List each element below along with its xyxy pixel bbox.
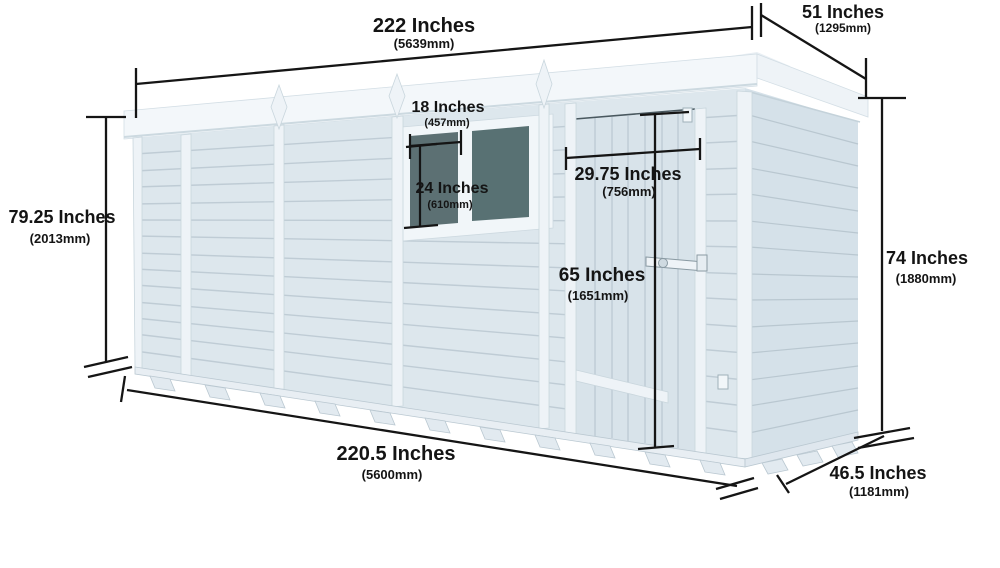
diagram-canvas: 222 Inches (5639mm) 51 Inches (1295mm) 7… xyxy=(0,0,1000,568)
overall-width-metric: (5639mm) xyxy=(394,36,455,51)
window-width-metric: (457mm) xyxy=(424,117,470,129)
door-width-metric: (756mm) xyxy=(602,184,655,199)
door-height-metric: (1651mm) xyxy=(568,288,629,303)
window-pane-right xyxy=(472,126,529,221)
base-depth-label: 46.5 Inches xyxy=(829,463,926,483)
window-height-label: 24 Inches xyxy=(416,180,489,197)
hinge-bottom xyxy=(718,375,728,389)
front-height-label: 79.25 Inches xyxy=(8,207,115,227)
door-frame-right xyxy=(695,108,706,455)
window-height-metric: (610mm) xyxy=(427,199,473,211)
hinge-top xyxy=(683,108,692,122)
overall-width-label: 222 Inches xyxy=(373,15,475,37)
window-width-label: 18 Inches xyxy=(412,99,485,116)
left-corner-trim xyxy=(133,137,142,369)
latch-knob xyxy=(659,259,668,268)
batten-4 xyxy=(539,104,549,429)
front-corner-trim xyxy=(737,91,752,459)
batten-2 xyxy=(274,125,284,390)
base-width-metric: (5600mm) xyxy=(362,467,423,482)
dimension-front-height xyxy=(84,117,132,377)
rear-height-label: 74 Inches xyxy=(886,248,968,268)
door-height-label: 65 Inches xyxy=(559,265,646,286)
shed-illustration xyxy=(124,52,868,475)
window xyxy=(402,114,553,241)
latch-keep xyxy=(697,255,707,271)
door-width-label: 29.75 Inches xyxy=(574,164,681,184)
roof-depth-label: 51 Inches xyxy=(802,2,884,22)
rear-height-metric: (1880mm) xyxy=(896,271,957,286)
roof-depth-metric: (1295mm) xyxy=(815,21,871,35)
base-width-label: 220.5 Inches xyxy=(337,443,456,465)
base-depth-metric: (1181mm) xyxy=(849,484,909,499)
batten-1 xyxy=(181,134,191,376)
batten-3 xyxy=(392,116,403,407)
front-height-metric: (2013mm) xyxy=(30,231,91,246)
shed-dimension-diagram: 222 Inches (5639mm) 51 Inches (1295mm) 7… xyxy=(0,0,1000,568)
